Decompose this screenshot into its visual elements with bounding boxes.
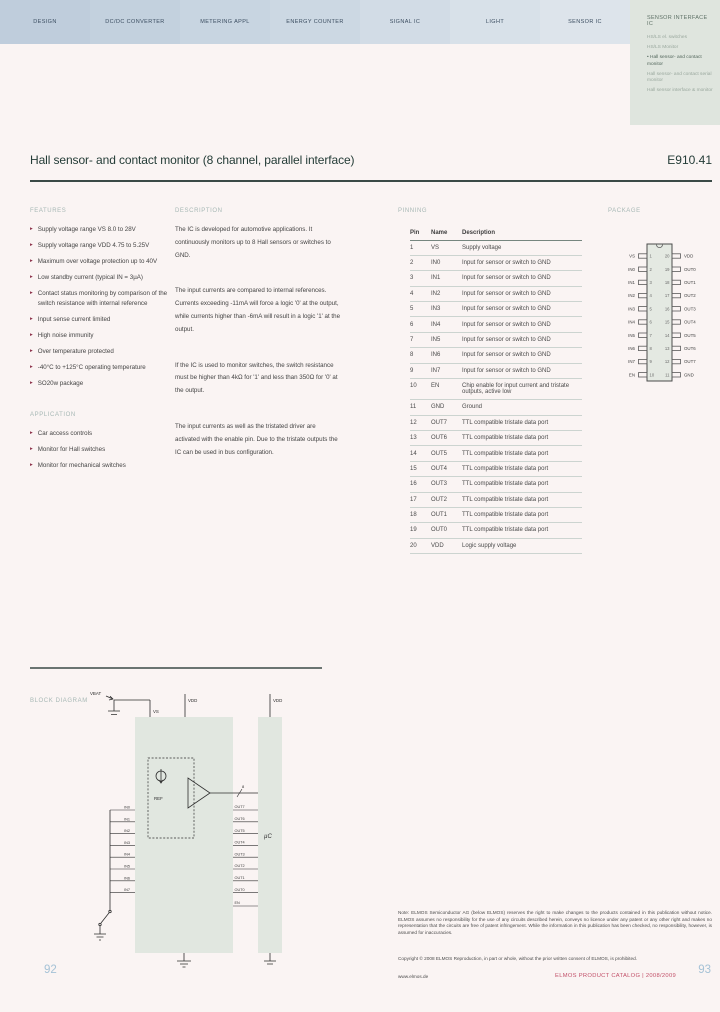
sidebar-items: HS/LS el. switches HS/LS Monitor Hall se… (647, 35, 714, 95)
asic-block (135, 717, 233, 953)
pin-row: 5 IN3 Input for sensor or switch to GND (410, 302, 582, 317)
pin-description: TTL compatible tristate data port (462, 507, 582, 522)
package-pin-label: IN6 (628, 346, 635, 351)
input-pin-label: IN2 (124, 829, 130, 833)
nav-tab-label: DC/DC CONVERTER (105, 19, 164, 25)
nav-tab[interactable]: DESIGN (0, 0, 90, 44)
svg-text:12: 12 (665, 359, 670, 364)
nav-tab[interactable]: METERING APPL (180, 0, 270, 44)
pin-description: TTL compatible tristate data port (462, 431, 582, 446)
pin-name: OUT5 (431, 446, 462, 461)
package-pin-label: IN2 (628, 293, 635, 298)
bullet-arrow-icon: ▸ (30, 315, 33, 325)
svg-text:20: 20 (665, 254, 670, 259)
bullet-arrow-icon: ▸ (30, 347, 33, 357)
pin-name: OUT2 (431, 492, 462, 507)
sidebar-item[interactable]: HS/LS el. switches (647, 35, 714, 41)
pin-row: 8 IN6 Input for sensor or switch to GND (410, 348, 582, 363)
pin-name: IN7 (431, 363, 462, 378)
bullet-arrow-icon: ▸ (30, 257, 33, 267)
pin-row: 17 OUT2 TTL compatible tristate data por… (410, 492, 582, 507)
feature-item: ▸ High noise immunity (30, 331, 173, 341)
pin-row: 9 IN7 Input for sensor or switch to GND (410, 363, 582, 378)
pin-name: IN3 (431, 302, 462, 317)
pin-description: TTL compatible tristate data port (462, 492, 582, 507)
output-lines: OUT7OUT6OUT5OUT4OUT3OUT2OUT1OUT0 (233, 805, 258, 892)
pin-number: 16 (410, 477, 431, 492)
nav-tab[interactable]: DC/DC CONVERTER (90, 0, 180, 44)
bullet-arrow-icon: ▸ (30, 445, 33, 455)
pin-number: 17 (410, 492, 431, 507)
pin-description: Input for sensor or switch to GND (462, 255, 582, 270)
pin-description: TTL compatible tristate data port (462, 446, 582, 461)
pin-name: OUT0 (431, 523, 462, 538)
feature-text: SO20w package (38, 379, 83, 389)
vbat-arrow-icon (106, 696, 113, 700)
title-divider (30, 180, 712, 182)
vbat-label: VBAT (90, 691, 101, 696)
pin-number: 2 (410, 255, 431, 270)
pin-number: 9 (410, 363, 431, 378)
pinning-heading: PINNING (398, 208, 590, 214)
pin-name: OUT4 (431, 461, 462, 476)
pin-number: 12 (410, 415, 431, 430)
output-pin-label: OUT0 (235, 888, 245, 892)
pin-description: TTL compatible tristate data port (462, 415, 582, 430)
bullet-arrow-icon: ▸ (30, 331, 33, 341)
nav-tab-label: LIGHT (486, 19, 504, 25)
pin-number: 14 (410, 446, 431, 461)
description-paragraph: If the IC is used to monitor switches, t… (175, 360, 341, 398)
input-pin-label: IN6 (124, 876, 130, 880)
pin-number: 3 (410, 271, 431, 286)
feature-item: ▸ Maximum over voltage protection up to … (30, 257, 173, 267)
output-pin-label: OUT4 (235, 841, 245, 845)
switch-ground-icon (94, 926, 106, 940)
nav-tab[interactable]: SIGNAL IC (360, 0, 450, 44)
description-paragraph: The input currents are compared to inter… (175, 285, 341, 336)
pin-number: 20 (410, 538, 431, 553)
pin-row: 7 IN5 Input for sensor or switch to GND (410, 332, 582, 347)
application-text: Monitor for Hall switches (38, 445, 105, 455)
pin-number: 19 (410, 523, 431, 538)
pin-name: IN6 (431, 348, 462, 363)
pin-number: 1 (410, 240, 431, 255)
package-pin-label: IN1 (628, 280, 635, 285)
battery-icon (108, 700, 120, 715)
vs-pin-label: VS (153, 709, 159, 714)
pin-name: IN0 (431, 255, 462, 270)
mcu-ground-icon (264, 953, 276, 964)
col-header-name: Name (431, 228, 462, 240)
asic-ground-icon (177, 953, 191, 967)
svg-text:18: 18 (665, 280, 670, 285)
pin-name: IN1 (431, 271, 462, 286)
feature-item: ▸ Supply voltage range VDD 4.75 to 5.25V (30, 241, 173, 251)
pin-description: Input for sensor or switch to GND (462, 271, 582, 286)
pin-number: 18 (410, 507, 431, 522)
switch-pole-icon (109, 910, 111, 912)
nav-tab-label: SIGNAL IC (390, 19, 421, 25)
feature-text: Over temperature protected (38, 347, 114, 357)
pin-number: 6 (410, 317, 431, 332)
svg-text:19: 19 (665, 267, 670, 272)
nav-tab[interactable]: SENSOR IC (540, 0, 630, 44)
pin-number: 11 (410, 400, 431, 415)
application-item: ▸ Monitor for mechanical switches (30, 461, 173, 471)
switch-blade-icon (101, 913, 109, 923)
pin-row: 18 OUT1 TTL compatible tristate data por… (410, 507, 582, 522)
package-pin-label: VDD (684, 254, 693, 259)
bullet-arrow-icon: ▸ (30, 241, 33, 251)
pin-row: 12 OUT7 TTL compatible tristate data por… (410, 415, 582, 430)
feature-text: High noise immunity (38, 331, 94, 341)
switch-throw-icon (99, 923, 101, 925)
output-pin-label: OUT7 (235, 805, 245, 809)
application-item: ▸ Car access controls (30, 429, 173, 439)
application-item: ▸ Monitor for Hall switches (30, 445, 173, 455)
application-heading: APPLICATION (30, 412, 173, 418)
pin-row: 11 GND Ground (410, 400, 582, 415)
svg-text:10: 10 (650, 372, 655, 377)
pin-description: Input for sensor or switch to GND (462, 348, 582, 363)
application-list: ▸ Car access controls ▸ Monitor for Hall… (30, 429, 173, 471)
description-paragraph: The input currents as well as the trista… (175, 421, 341, 459)
pin-row: 14 OUT5 TTL compatible tristate data por… (410, 446, 582, 461)
pin-name: VS (431, 240, 462, 255)
package-pin-label: OUT1 (684, 280, 696, 285)
output-pin-label: OUT1 (235, 876, 245, 880)
pin-name: IN4 (431, 317, 462, 332)
feature-item: ▸ SO20w package (30, 379, 173, 389)
pin-description: Supply voltage (462, 240, 582, 255)
package-pin-label: OUT4 (684, 320, 696, 325)
feature-item: ▸ Over temperature protected (30, 347, 173, 357)
nav-tab-label: SENSOR IC (568, 19, 602, 25)
description-section: DESCRIPTION The IC is developed for auto… (175, 208, 341, 459)
pin-number: 7 (410, 332, 431, 347)
website-text: www.elmos.de (398, 974, 428, 979)
enable-label: EN (235, 901, 241, 905)
nav-tab-label: METERING APPL (200, 19, 250, 25)
package-pin-label: VS (629, 254, 635, 259)
pin-name: OUT7 (431, 415, 462, 430)
pin-name: GND (431, 400, 462, 415)
feature-item: ▸ Supply voltage range VS 8.0 to 28V (30, 225, 173, 235)
features-list: ▸ Supply voltage range VS 8.0 to 28V ▸ S… (30, 225, 173, 388)
description-paragraphs: The IC is developed for automotive appli… (175, 224, 341, 459)
package-pin-label: OUT5 (684, 333, 696, 338)
bullet-arrow-icon: ▸ (30, 429, 33, 439)
block-diagram-heading: BLOCK DIAGRAM (30, 698, 88, 704)
input-pin-label: IN1 (124, 817, 130, 821)
page-title: Hall sensor- and contact monitor (8 chan… (30, 153, 354, 167)
feature-item: ▸ Low standby current (typical IN = 3µA) (30, 273, 173, 283)
pin-name: OUT3 (431, 477, 462, 492)
pin-name: EN (431, 378, 462, 399)
pin-name: VDD (431, 538, 462, 553)
pin-description: TTL compatible tristate data port (462, 461, 582, 476)
description-heading: DESCRIPTION (175, 208, 341, 214)
sidebar-title: SENSOR INTERFACE IC (647, 15, 714, 27)
feature-text: Supply voltage range VDD 4.75 to 5.25V (38, 241, 149, 251)
feature-text: Maximum over voltage protection up to 40… (38, 257, 157, 267)
output-pin-label: OUT2 (235, 864, 245, 868)
bullet-arrow-icon: ▸ (30, 289, 33, 308)
mcu-vdd-label: VDD (273, 698, 282, 703)
nav-tab[interactable]: ENERGY COUNTER (270, 0, 360, 44)
svg-text:11: 11 (665, 372, 670, 377)
category-tabs: DESIGN DC/DC CONVERTER METERING APPL ENE… (0, 0, 630, 44)
sidebar-item[interactable]: HS/LS Monitor (647, 45, 714, 51)
output-pin-label: OUT5 (235, 829, 245, 833)
sidebar-item[interactable]: Hall sensor- and contact monitor (647, 55, 714, 67)
bullet-arrow-icon: ▸ (30, 225, 33, 235)
feature-item: ▸ -40°C to +125°C operating temperature (30, 363, 173, 373)
catalog-page: DESIGN DC/DC CONVERTER METERING APPL ENE… (0, 0, 720, 1012)
sidebar-item[interactable]: Hall sensor interface & monitor (647, 88, 714, 94)
application-text: Car access controls (38, 429, 92, 439)
feature-text: -40°C to +125°C operating temperature (38, 363, 146, 373)
package-pin-label: OUT2 (684, 293, 696, 298)
input-pin-label: IN3 (124, 841, 130, 845)
package-section: PACKAGE 1VS2IN03IN14IN25IN36IN47IN58IN69… (600, 208, 715, 403)
package-pin-label: IN3 (628, 306, 635, 311)
input-lines: IN0IN1IN2IN3IN4IN5IN6IN7 (110, 806, 135, 893)
col-header-description: Description (462, 228, 582, 240)
pin-description: Input for sensor or switch to GND (462, 286, 582, 301)
feature-text: Supply voltage range VS 8.0 to 28V (38, 225, 136, 235)
svg-text:17: 17 (665, 293, 670, 298)
pin-number: 15 (410, 461, 431, 476)
package-pin-label: IN4 (628, 320, 635, 325)
part-number: E910.41 (667, 153, 712, 167)
pin-row: 1 VS Supply voltage (410, 240, 582, 255)
input-pin-label: IN4 (124, 853, 130, 857)
pin-row: 4 IN2 Input for sensor or switch to GND (410, 286, 582, 301)
sidebar-item[interactable]: Hall sensor- and contact serial monitor (647, 72, 714, 84)
package-pin-label: OUT7 (684, 359, 696, 364)
bullet-arrow-icon: ▸ (30, 461, 33, 471)
input-pin-label: IN7 (124, 888, 130, 892)
pin-name: IN5 (431, 332, 462, 347)
package-pin-label: IN0 (628, 267, 635, 272)
features-heading: FEATURES (30, 208, 173, 214)
block-diagram: BLOCK DIAGRAM µC VBAT VS VDD VDD REF 8 I… (30, 660, 395, 990)
pin-description: Input for sensor or switch to GND (462, 363, 582, 378)
pin-row: 19 OUT0 TTL compatible tristate data por… (410, 523, 582, 538)
catalog-title: ELMOS PRODUCT CATALOG | 2008/2009 (555, 973, 676, 979)
pin-row: 13 OUT6 TTL compatible tristate data por… (410, 431, 582, 446)
pin-description: Input for sensor or switch to GND (462, 317, 582, 332)
pin-description: Input for sensor or switch to GND (462, 302, 582, 317)
pin-description: Input for sensor or switch to GND (462, 332, 582, 347)
package-pin-label: OUT6 (684, 346, 696, 351)
output-pin-label: OUT3 (235, 852, 245, 856)
pin-number: 5 (410, 302, 431, 317)
nav-tab[interactable]: LIGHT (450, 0, 540, 44)
bullet-arrow-icon: ▸ (30, 379, 33, 389)
pin-number: 8 (410, 348, 431, 363)
package-pin-label: OUT3 (684, 306, 696, 311)
feature-item: ▸ Contact status monitoring by compariso… (30, 289, 173, 308)
vdd-label: VDD (188, 698, 197, 703)
svg-text:14: 14 (665, 333, 670, 338)
pin-name: OUT1 (431, 507, 462, 522)
pin-number: 10 (410, 378, 431, 399)
package-heading: PACKAGE (608, 208, 715, 214)
pin-row: 2 IN0 Input for sensor or switch to GND (410, 255, 582, 270)
title-bar: Hall sensor- and contact monitor (8 chan… (30, 153, 712, 167)
col-header-pin: Pin (410, 228, 431, 240)
features-section: FEATURES ▸ Supply voltage range VS 8.0 t… (30, 208, 173, 477)
pin-description: Logic supply voltage (462, 538, 582, 553)
input-pin-label: IN5 (124, 865, 130, 869)
pin-table: Pin Name Description 1 VS Supply voltage… (410, 228, 582, 554)
chapter-sidebar: SENSOR INTERFACE IC HS/LS el. switches H… (630, 0, 720, 125)
feature-text: Contact status monitoring by comparison … (38, 289, 173, 308)
legal-disclaimer: Note: ELMOS Semiconductor AG (below ELMO… (398, 910, 712, 936)
feature-text: Low standby current (typical IN = 3µA) (38, 273, 143, 283)
pin-row: 6 IN4 Input for sensor or switch to GND (410, 317, 582, 332)
svg-text:13: 13 (665, 346, 670, 351)
package-pin-label: OUT0 (684, 267, 696, 272)
package-pinout-drawing: 1VS2IN03IN14IN25IN36IN47IN58IN69IN710EN2… (600, 228, 715, 403)
feature-text: Input sense current limited (38, 315, 111, 325)
pin-row: 10 EN Chip enable for input current and … (410, 378, 582, 399)
pin-number: 4 (410, 286, 431, 301)
bullet-arrow-icon: ▸ (30, 273, 33, 283)
pin-table-header: Pin Name Description (410, 228, 582, 240)
bus-width-label: 8 (242, 784, 245, 789)
pin-description: TTL compatible tristate data port (462, 523, 582, 538)
package-pin-label: GND (684, 372, 694, 377)
pin-row: 16 OUT3 TTL compatible tristate data por… (410, 477, 582, 492)
pin-row: 15 OUT4 TTL compatible tristate data por… (410, 461, 582, 476)
pin-number: 13 (410, 431, 431, 446)
pin-row: 3 IN1 Input for sensor or switch to GND (410, 271, 582, 286)
svg-text:16: 16 (665, 306, 670, 311)
package-pin-label: IN5 (628, 333, 635, 338)
input-pin-label: IN0 (124, 806, 130, 810)
svg-text:15: 15 (665, 320, 670, 325)
page-number-right: 93 (698, 964, 711, 976)
pinning-section: PINNING Pin Name Description 1 VS Supply… (398, 208, 590, 554)
output-pin-label: OUT6 (235, 817, 245, 821)
pin-row: 20 VDD Logic supply voltage (410, 538, 582, 553)
package-pin-label: EN (629, 372, 635, 377)
pin-description: Ground (462, 400, 582, 415)
description-paragraph: The IC is developed for automotive appli… (175, 224, 341, 262)
bullet-arrow-icon: ▸ (30, 363, 33, 373)
nav-tab-label: DESIGN (33, 19, 57, 25)
pin-name: OUT6 (431, 431, 462, 446)
pin-description: TTL compatible tristate data port (462, 477, 582, 492)
nav-tab-label: ENERGY COUNTER (286, 19, 343, 25)
mcu-label: µC (264, 834, 272, 840)
package-pin-label: IN7 (628, 359, 635, 364)
pin-name: IN2 (431, 286, 462, 301)
copyright-note: Copyright © 2008 ELMOS Reproduction, in … (398, 956, 712, 961)
page-number-left: 92 (44, 964, 57, 976)
reference-label: REF (154, 796, 163, 801)
pin-description: Chip enable for input current and trista… (462, 378, 582, 399)
vbat-wire (114, 700, 150, 717)
feature-item: ▸ Input sense current limited (30, 315, 173, 325)
application-text: Monitor for mechanical switches (38, 461, 126, 471)
